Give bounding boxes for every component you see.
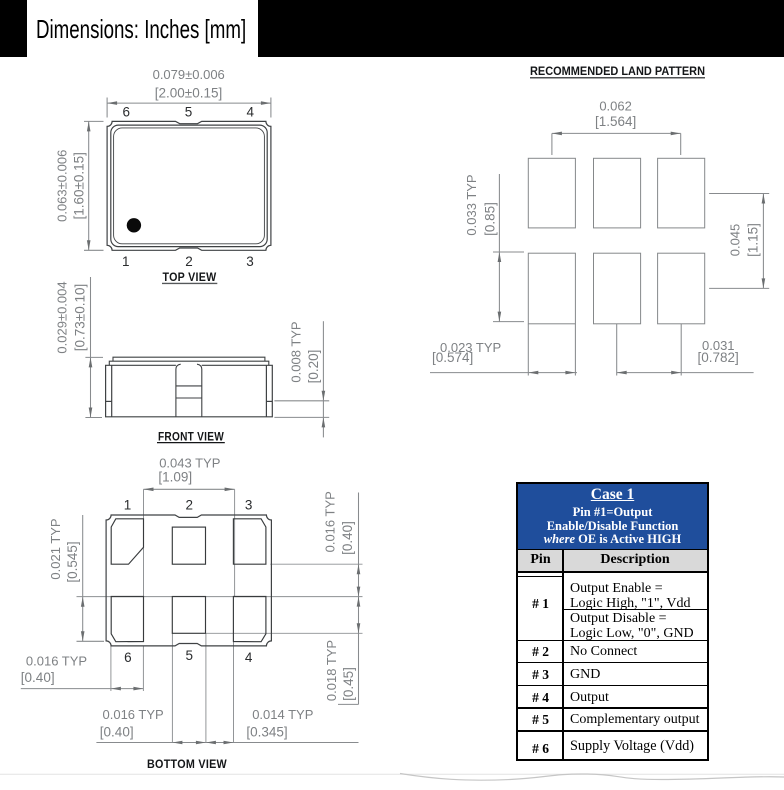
svg-text:0.045: 0.045 (727, 224, 742, 257)
svg-text:[0.345]: [0.345] (246, 725, 287, 740)
svg-text:0.043 TYP: 0.043 TYP (159, 456, 220, 471)
svg-text:RECOMMENDED LAND PATTERN: RECOMMENDED LAND PATTERN (530, 65, 705, 78)
svg-text:[0.45]: [0.45] (341, 667, 356, 701)
svg-text:BOTTOM VIEW: BOTTOM VIEW (147, 758, 227, 771)
svg-text:0.016 TYP: 0.016 TYP (103, 707, 164, 722)
svg-text:0.021 TYP: 0.021 TYP (48, 518, 63, 579)
svg-text:2: 2 (185, 498, 193, 513)
svg-text:0.018 TYP: 0.018 TYP (324, 640, 339, 701)
svg-text:[0.574]: [0.574] (432, 350, 473, 365)
svg-text:0.062: 0.062 (599, 99, 632, 114)
svg-text:4: 4 (245, 650, 253, 665)
svg-text:0.033 TYP: 0.033 TYP (464, 174, 479, 235)
svg-text:0.014 TYP: 0.014 TYP (252, 707, 313, 722)
svg-text:[1.564]: [1.564] (595, 114, 636, 129)
svg-text:[0.545]: [0.545] (65, 541, 80, 582)
svg-text:[1.15]: [1.15] (745, 223, 760, 257)
svg-text:[0.85]: [0.85] (482, 202, 497, 236)
svg-text:6: 6 (124, 650, 132, 665)
svg-text:1: 1 (124, 498, 132, 513)
svg-text:[0.40]: [0.40] (340, 521, 355, 555)
svg-text:[0.40]: [0.40] (21, 670, 55, 685)
svg-text:5: 5 (185, 648, 193, 663)
svg-text:0.016 TYP: 0.016 TYP (322, 491, 337, 552)
svg-text:0.016 TYP: 0.016 TYP (26, 654, 87, 669)
svg-text:3: 3 (245, 498, 253, 513)
svg-text:[1.09]: [1.09] (158, 470, 192, 485)
svg-text:[0.40]: [0.40] (100, 725, 134, 740)
svg-text:[0.782]: [0.782] (698, 350, 739, 365)
